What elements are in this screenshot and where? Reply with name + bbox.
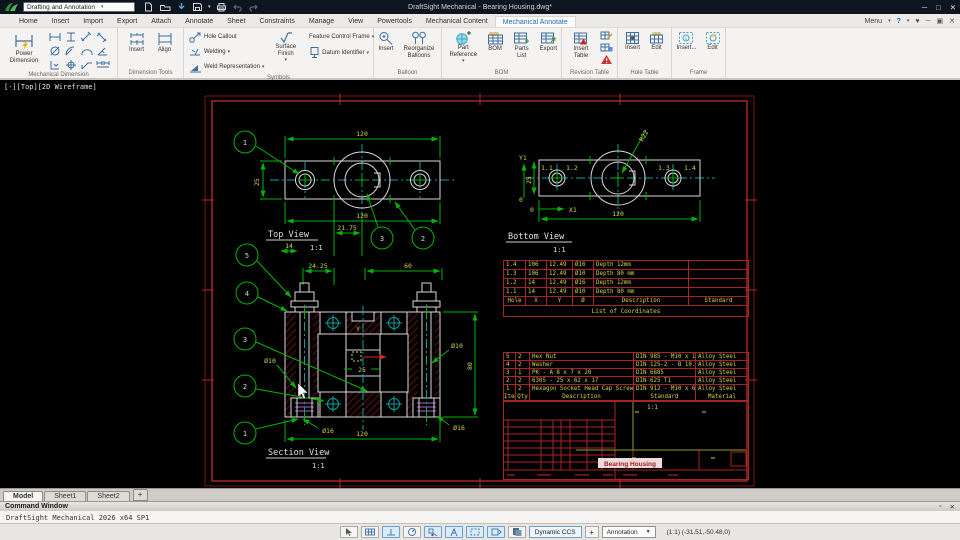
ribbon-tab-sheet[interactable]: Sheet xyxy=(220,16,252,27)
surface-finish-button[interactable]: Surface Finish ▾ xyxy=(267,29,304,64)
ordinate-dimension-icon xyxy=(48,59,62,71)
dim-120-bv: 120 xyxy=(612,210,624,218)
doc-close-button[interactable]: ✕ xyxy=(949,17,955,25)
dia10-right: Ø10 xyxy=(451,342,463,350)
table-row: 52Hex NutDIN 985 - M10 x 1Alloy Steel xyxy=(504,353,748,361)
title-bar: Drafting and Annotation ▾ ▾ DraftSight M… xyxy=(0,0,960,14)
drawing-name[interactable]: Bearing Housing xyxy=(604,461,656,468)
table-cell: 14 xyxy=(526,279,547,287)
reorganize-balloons-button[interactable]: Reorganize Balloons xyxy=(399,29,439,60)
ortho-icon xyxy=(385,527,397,537)
undo-button[interactable] xyxy=(232,2,243,12)
section-view[interactable]: Y 25 5 4 3 2 1 xyxy=(234,244,478,470)
table-cell: DIN 125-2 - B 10.5 xyxy=(634,361,696,368)
table-cell: 12.49 xyxy=(547,270,573,278)
title-block[interactable]: 1:1 Bearing Housing xyxy=(503,400,749,480)
open-file-button[interactable] xyxy=(159,2,171,12)
doc-restore-button[interactable]: ▣ xyxy=(937,17,944,25)
dia10-left: Ø10 xyxy=(264,357,276,365)
drawing-canvas[interactable]: [-][Top][2D Wireframe] xyxy=(0,80,960,488)
balloon-5: 5 xyxy=(245,252,249,260)
clipboard-icon xyxy=(511,527,523,537)
bom-icon xyxy=(487,31,504,46)
drawing-svg: 120 120 25 1 3 2 Top View 1:1 21.75 24.2… xyxy=(0,80,960,488)
dim-25-bore: 25 xyxy=(358,366,366,374)
minimize-button[interactable]: ─ xyxy=(922,3,927,12)
app-logo-icon xyxy=(4,2,19,13)
table-cell: 106 xyxy=(526,261,547,269)
table-header-cell: Standard xyxy=(689,297,748,305)
redo-button[interactable] xyxy=(248,2,259,12)
hole-callout-button[interactable]: Hole Callout xyxy=(186,30,266,44)
table-header-cell: Y xyxy=(547,297,573,305)
table-cell: Depth 80 mm xyxy=(594,288,689,296)
power-dimension-button[interactable]: Power Dimension xyxy=(2,29,46,65)
table-cell: 5 xyxy=(504,353,516,360)
arc-length-dimension-icon xyxy=(80,45,94,57)
rotated-dimension-button[interactable] xyxy=(95,30,110,43)
table-row: 1.21412.49Ø16Depth 12mm xyxy=(504,279,748,288)
dim-60: 60 xyxy=(404,262,412,270)
command-window-body[interactable]: DraftSight Mechanical 2026 x64 SP1 xyxy=(0,511,960,524)
table-cell: 14 xyxy=(526,288,547,296)
polar-icon xyxy=(406,527,418,537)
table-cell: 106 xyxy=(526,270,547,278)
ribbon-group-frame: Insert... Edit Frame xyxy=(672,28,726,78)
bottom-view-title: Bottom View xyxy=(508,232,565,242)
frame-insert-button[interactable]: Insert... xyxy=(674,29,698,52)
ribbon-tab-import[interactable]: Import xyxy=(76,16,110,27)
command-window-title: Command Window xyxy=(5,503,68,510)
chain-dimension-icon xyxy=(96,59,110,71)
chamfer-dimension-icon xyxy=(80,59,94,71)
table-header-cell: Qty xyxy=(516,393,530,400)
viewport-label[interactable]: [-][Top][2D Wireframe] xyxy=(4,83,97,91)
dim-80: 80 xyxy=(466,362,474,370)
frame-edit-icon xyxy=(705,31,721,45)
frame-insert-icon xyxy=(678,31,694,45)
help-caret-icon[interactable]: ▾ xyxy=(907,18,910,24)
diameter-dimension-button[interactable] xyxy=(47,44,62,57)
ortho-toggle[interactable] xyxy=(382,526,400,538)
balloon-4: 4 xyxy=(245,290,249,298)
ribbon-group-revision-table: Insert Table Revision Table xyxy=(562,28,618,78)
esnap-toggle[interactable] xyxy=(424,526,442,538)
save-button[interactable] xyxy=(192,2,203,12)
list-of-coordinates-table[interactable]: 1.410612.49Ø16Depth 12mm1.310612.49Ø10De… xyxy=(503,260,749,317)
ccs-toggle[interactable] xyxy=(487,526,505,538)
table-cell: DIN 625 T1 xyxy=(634,377,696,384)
status-bar: Dynamic CCS + Annotation ▼ (1:1) (-31.51… xyxy=(0,524,960,540)
table-cell: Alloy Steel xyxy=(696,353,748,360)
table-header-cell: Material xyxy=(696,393,748,400)
hole-table-insert-icon xyxy=(625,31,641,45)
zero-x: 0 xyxy=(530,206,534,214)
linear-dimension-button[interactable] xyxy=(47,30,62,43)
dia16-left: Ø16 xyxy=(322,427,334,435)
section-view-title: Section View xyxy=(268,448,330,458)
ribbon-tab-mechanical-annotate[interactable]: Mechanical Annotate xyxy=(495,16,576,27)
select-caret-icon: ▼ xyxy=(646,529,651,535)
diameter-dimension-icon xyxy=(48,45,62,57)
table-cell: Depth 12mm xyxy=(594,261,689,269)
dia16-right: Ø16 xyxy=(453,424,465,432)
dashed-box-icon xyxy=(469,527,481,537)
weld-representation-caret-icon[interactable]: ▾ xyxy=(262,64,265,70)
table-header-cell: Standard xyxy=(634,393,696,400)
dim-14: 14 xyxy=(285,242,293,250)
angular-dimension-icon xyxy=(96,45,110,57)
table-header-cell: Ø xyxy=(573,297,594,305)
ribbon-tab-annotate[interactable]: Annotate xyxy=(178,16,220,27)
table-cell: PK - A 8 x 7 x 20 xyxy=(530,369,634,376)
menu-button[interactable]: Menu xyxy=(865,18,883,25)
table-cell xyxy=(689,279,748,287)
arc-length-dimension-button[interactable] xyxy=(79,44,94,57)
table-cell xyxy=(689,261,748,269)
ribbon-group-balloon: Insert Reorganize Balloons Balloon xyxy=(374,28,442,78)
table-cell: DIN 912 - M10 x 60 xyxy=(634,385,696,393)
ribbon-group-dimension-tools: Insert Align Dimension Tools xyxy=(118,28,184,78)
ccs-icon xyxy=(490,527,502,537)
table-cell: 1 xyxy=(504,385,516,393)
ribbon-group-hole-table: Insert Edit Hole Table xyxy=(618,28,672,78)
rotated-dimension-icon xyxy=(96,31,110,43)
dimension-align-button[interactable]: Align xyxy=(154,29,176,54)
status-add-button[interactable]: + xyxy=(585,526,599,538)
grid-toggle[interactable] xyxy=(361,526,379,538)
table-cell: Ø16 xyxy=(573,279,594,287)
table-cell: 4 xyxy=(504,361,516,368)
table-cell xyxy=(689,288,748,296)
table-header-cell: X xyxy=(526,297,547,305)
annotation-style-value: Annotation xyxy=(607,529,638,536)
bottom-view-scale: 1:1 xyxy=(553,246,566,254)
table-cell: 2 xyxy=(516,385,530,393)
axis-y1: Y1 xyxy=(519,154,527,162)
table-cell: Hexagon Socket Head Cap Screw xyxy=(530,385,634,393)
top-view-scale: 1:1 xyxy=(310,244,323,252)
table-cell: 2 xyxy=(516,353,530,360)
chevron-down-icon: ▾ xyxy=(101,4,104,10)
part-reference-icon xyxy=(455,31,472,45)
center-mark-icon xyxy=(64,59,78,71)
command-window-titlebar[interactable]: Command Window ▫ ✕ xyxy=(0,501,960,511)
esnap-icon xyxy=(427,527,439,537)
table-cell: Washer xyxy=(530,361,634,368)
chain-dimension-button[interactable] xyxy=(95,58,110,71)
annotation-style-select[interactable]: Annotation ▼ xyxy=(602,526,656,538)
ribbon-tab-manage[interactable]: Manage xyxy=(302,16,341,27)
radius-r22: R22 xyxy=(638,129,651,143)
welding-button[interactable]: Welding ▾ xyxy=(186,45,266,59)
tab-model[interactable]: Model xyxy=(3,491,43,501)
sheet-tab-bar: Model Sheet1 Sheet2 + xyxy=(0,488,960,501)
doc-minimize-button[interactable]: ─ xyxy=(926,18,931,25)
weld-representation-button[interactable]: Weld Representation ▾ xyxy=(186,60,266,74)
ribbon-group-mechanical-dimension: Power Dimension Mechanical Dimension xyxy=(0,28,118,78)
ribbon-group-bom: Part Reference ▾ BOM Parts List Export B… xyxy=(442,28,562,78)
title-block-scale: 1:1 xyxy=(647,404,658,411)
vertical-dimension-button[interactable] xyxy=(63,30,78,43)
table-cell: 1.1 xyxy=(504,288,526,296)
clipboard-toggle[interactable] xyxy=(508,526,526,538)
table-row: 12Hexagon Socket Head Cap ScrewDIN 912 -… xyxy=(504,385,748,393)
coordinate-table-title: List of Coordinates xyxy=(504,306,748,316)
whats-new-icon[interactable]: ♥ xyxy=(915,18,919,25)
selection-cycling-toggle[interactable] xyxy=(466,526,484,538)
aligned-dimension-button[interactable] xyxy=(79,30,94,43)
table-row: 1.310612.49Ø10Depth 80 mm xyxy=(504,270,748,279)
command-window-close-button[interactable]: ✕ xyxy=(950,503,955,511)
revision-warning-icon[interactable] xyxy=(600,54,613,65)
ribbon-tab-insert[interactable]: Insert xyxy=(45,16,77,27)
power-dimension-icon xyxy=(13,31,35,51)
table-cell: 6305 - 25 x 62 x 17 xyxy=(530,377,634,384)
grid-icon xyxy=(364,527,376,537)
dim-120-top: 120 xyxy=(356,130,368,138)
dynamic-ccs-button[interactable]: Dynamic CCS xyxy=(529,526,582,538)
parts-list-button[interactable]: Parts List xyxy=(508,29,536,60)
center-mark-button[interactable] xyxy=(63,58,78,71)
surface-finish-caret-icon[interactable]: ▾ xyxy=(284,58,287,64)
table-cell xyxy=(689,270,748,278)
table-cell: 2 xyxy=(504,377,516,384)
etrack-icon xyxy=(448,527,460,537)
new-file-button[interactable] xyxy=(143,2,154,12)
hole-table-edit-icon xyxy=(649,31,665,45)
bom-parts-table[interactable]: 52Hex NutDIN 985 - M10 x 1Alloy Steel42W… xyxy=(503,352,749,402)
table-cell: Ø16 xyxy=(573,261,594,269)
bom-export-icon xyxy=(540,31,557,46)
command-window-float-button[interactable]: ▫ xyxy=(939,503,941,511)
hole-callout-icon xyxy=(188,31,202,43)
table-header-cell: Description xyxy=(530,393,634,400)
section-view-scale: 1:1 xyxy=(312,462,325,470)
table-cell: DIN 985 - M10 x 1 xyxy=(634,353,696,360)
datum-identifier-icon xyxy=(307,46,320,59)
dim-120-section: 120 xyxy=(356,430,368,438)
dim-25: 25 xyxy=(253,178,261,186)
reorganize-balloons-icon xyxy=(411,31,427,46)
hole-tag-11: 1.1 xyxy=(541,164,553,172)
hole-table-insert-button[interactable]: Insert xyxy=(623,29,643,52)
workspace-selector-value: Drafting and Annotation xyxy=(27,4,95,11)
angular-dimension-button[interactable] xyxy=(95,44,110,57)
ribbon-tab-bar: HomeInsertImportExportAttachAnnotateShee… xyxy=(0,14,960,28)
ribbon-tab-powertools[interactable]: Powertools xyxy=(370,16,419,27)
snap-toggle[interactable] xyxy=(340,526,358,538)
dimension-insert-icon xyxy=(128,31,146,47)
table-cell: 1 xyxy=(516,369,530,376)
datum-identifier-button[interactable]: Datum Identifier ▾ xyxy=(305,45,371,60)
radius-dimension-button[interactable] xyxy=(63,44,78,57)
ribbon-tab-view[interactable]: View xyxy=(341,16,370,27)
balloon-3: 3 xyxy=(243,336,247,344)
polar-toggle[interactable] xyxy=(403,526,421,538)
ccs-y-label: Y xyxy=(356,325,360,333)
dimension-insert-button[interactable]: Insert xyxy=(126,29,148,54)
menu-caret-icon[interactable]: ▾ xyxy=(888,18,891,24)
welding-icon xyxy=(188,46,202,58)
table-cell: 12.49 xyxy=(547,261,573,269)
top-view[interactable]: 120 120 25 1 3 2 Top View 1:1 xyxy=(234,130,455,252)
dim-2425: 24.25 xyxy=(308,262,328,270)
ribbon-tab-constraints[interactable]: Constraints xyxy=(252,16,301,27)
part-reference-caret-icon[interactable]: ▾ xyxy=(462,59,465,65)
table-cell: 12.49 xyxy=(547,288,573,296)
balloon-1: 1 xyxy=(243,139,247,147)
weld-representation-icon xyxy=(188,61,202,73)
table-row: 42WasherDIN 125-2 - B 10.5Alloy Steel xyxy=(504,361,748,369)
zero-y: 0 xyxy=(519,196,523,204)
table-cell: 1.3 xyxy=(504,270,526,278)
chamfer-dimension-button[interactable] xyxy=(79,58,94,71)
close-button[interactable]: ✕ xyxy=(950,3,956,12)
revision-update-table-icon[interactable] xyxy=(600,42,613,53)
revision-insert-table-icon xyxy=(573,31,590,46)
table-row: 226305 - 25 x 62 x 17DIN 625 T1Alloy Ste… xyxy=(504,377,748,385)
ribbon-tab-mechanical-content[interactable]: Mechanical Content xyxy=(419,16,495,27)
aligned-dimension-icon xyxy=(80,31,94,43)
ribbon-tab-export[interactable]: Export xyxy=(110,16,144,27)
ribbon-tab-home[interactable]: Home xyxy=(12,16,45,27)
table-header-cell: Item xyxy=(504,393,516,400)
vertical-dimension-icon xyxy=(64,31,78,43)
table-header-cell: Description xyxy=(594,297,689,305)
etrack-toggle[interactable] xyxy=(445,526,463,538)
table-cell: Alloy Steel xyxy=(696,369,748,376)
table-cell: Depth 12mm xyxy=(594,279,689,287)
revision-insert-table-button[interactable]: Insert Table xyxy=(564,29,598,60)
hole-table-edit-button[interactable]: Edit xyxy=(647,29,667,52)
table-cell: Hex Nut xyxy=(530,353,634,360)
parts-list-icon xyxy=(513,31,530,46)
table-cell: 12.49 xyxy=(547,279,573,287)
import-button[interactable] xyxy=(176,2,187,12)
table-header-cell: Hole xyxy=(504,297,526,305)
dim-2175: 21.75 xyxy=(337,224,357,232)
quick-access-toolbar: ▾ xyxy=(143,2,259,12)
bottom-view[interactable]: R22 Y1 25 0 0 X1 120 1.1 1.2 1.3 1.4 Bot… xyxy=(506,129,715,254)
pointer-icon xyxy=(343,527,355,537)
save-dropdown-caret[interactable]: ▾ xyxy=(208,4,211,10)
dimension-align-icon xyxy=(156,31,174,47)
ordinate-dimension-button[interactable] xyxy=(47,58,62,71)
print-button[interactable] xyxy=(216,2,227,12)
table-cell: Alloy Steel xyxy=(696,377,748,384)
table-cell: 1.4 xyxy=(504,261,526,269)
revision-edit-table-icon[interactable] xyxy=(600,30,613,41)
workspace-selector[interactable]: Drafting and Annotation ▾ xyxy=(23,2,135,12)
linear-dimension-icon xyxy=(48,31,62,43)
table-cell: Ø10 xyxy=(573,288,594,296)
table-cell: 2 xyxy=(516,361,530,368)
command-output: DraftSight Mechanical 2026 x64 SP1 xyxy=(6,514,149,522)
balloon-insert-button[interactable]: Insert xyxy=(376,29,396,53)
table-cell: DIN 6885 xyxy=(634,369,696,376)
tab-sheet1[interactable]: Sheet1 xyxy=(44,491,86,501)
ribbon: Power Dimension Mechanical Dimension xyxy=(0,28,960,80)
balloon-2: 2 xyxy=(421,235,425,243)
table-cell: Alloy Steel xyxy=(696,385,748,393)
table-cell: 2 xyxy=(516,377,530,384)
maximize-button[interactable]: □ xyxy=(936,3,941,12)
part-reference-button[interactable]: Part Reference ▾ xyxy=(444,29,483,65)
table-cell: Depth 80 mm xyxy=(594,270,689,278)
table-cell: 1.2 xyxy=(504,279,526,287)
balloon-insert-icon xyxy=(378,31,394,46)
hole-tag-14: 1.4 xyxy=(684,164,696,172)
top-view-title: Top View xyxy=(268,230,310,240)
dim-25-bv: 25 xyxy=(525,176,533,184)
balloon-2: 2 xyxy=(243,383,247,391)
feature-control-frame-button[interactable]: Feature Control Frame ▾ xyxy=(305,30,371,44)
balloon-3: 3 xyxy=(380,235,384,243)
add-sheet-button[interactable]: + xyxy=(133,489,148,501)
table-cell: 3 xyxy=(504,369,516,376)
frame-edit-button[interactable]: Edit xyxy=(703,29,723,52)
bom-export-button[interactable]: Export xyxy=(538,29,559,53)
bom-button[interactable]: BOM xyxy=(485,29,506,53)
ribbon-group-symbols: Hole Callout Welding ▾ Weld Representati… xyxy=(184,28,374,78)
coordinate-readout: (1:1) (-31.51,-50.48,0) xyxy=(667,529,731,536)
help-button[interactable]: ? xyxy=(897,18,901,25)
welding-caret-icon[interactable]: ▾ xyxy=(228,49,231,55)
balloon-1: 1 xyxy=(243,430,247,438)
hole-tag-12: 1.2 xyxy=(566,164,578,172)
radius-dimension-icon xyxy=(64,45,78,57)
hole-tag-13: 1.3 xyxy=(658,164,670,172)
table-row: 31PK - A 8 x 7 x 20DIN 6885Alloy Steel xyxy=(504,369,748,377)
datum-caret-icon[interactable]: ▾ xyxy=(366,50,369,56)
surface-finish-icon xyxy=(278,31,294,44)
table-row: 1.11412.49Ø10Depth 80 mm xyxy=(504,288,748,297)
axis-x1: X1 xyxy=(569,206,577,214)
table-cell: Ø10 xyxy=(573,270,594,278)
tab-sheet2[interactable]: Sheet2 xyxy=(87,491,129,501)
table-cell: Alloy Steel xyxy=(696,361,748,368)
ribbon-tab-attach[interactable]: Attach xyxy=(144,16,178,27)
table-row: 1.410612.49Ø16Depth 12mm xyxy=(504,261,748,270)
